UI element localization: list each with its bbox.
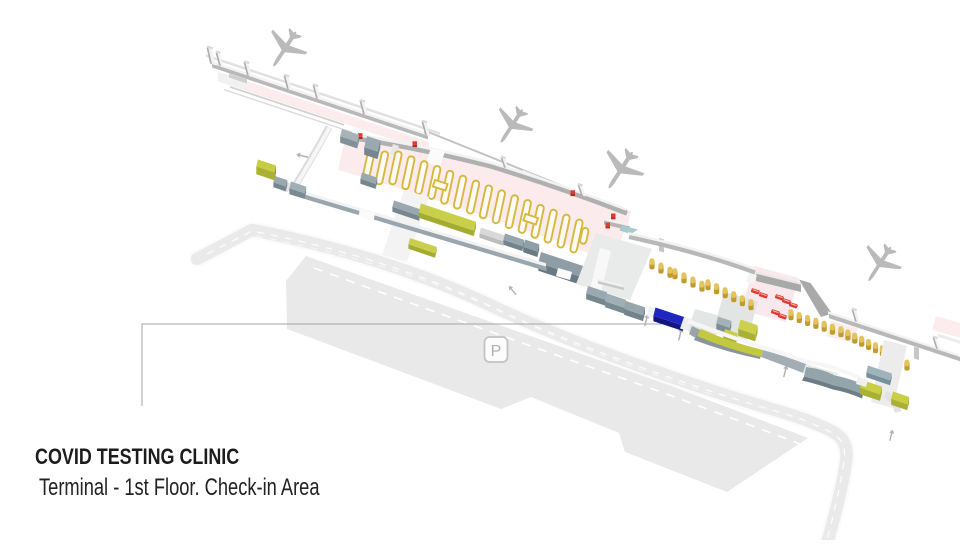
svg-text:P: P [491,343,502,360]
